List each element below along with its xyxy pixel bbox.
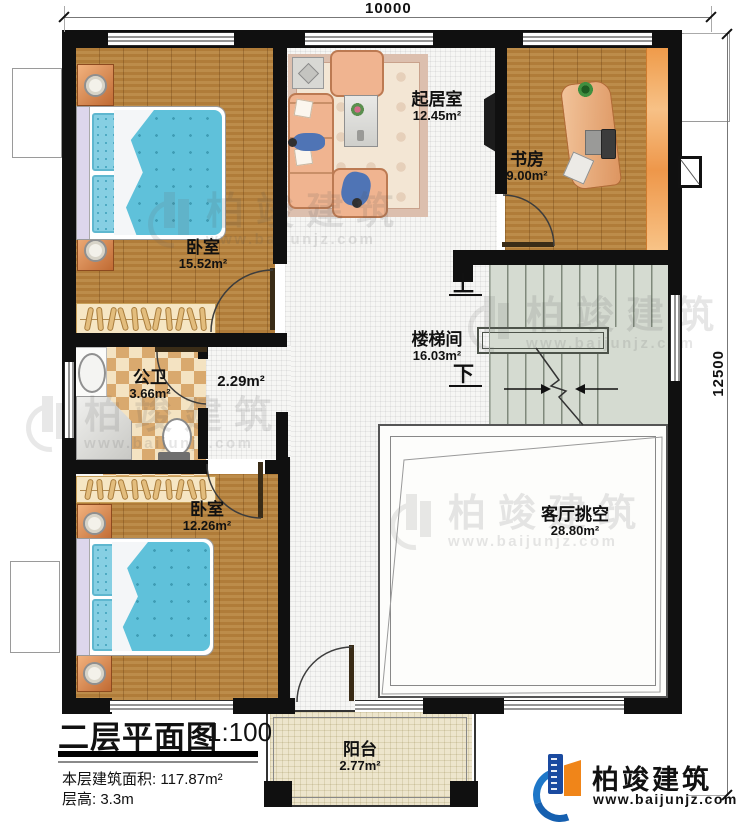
living-label: 起居室 12.45m²: [412, 90, 463, 124]
window-top-living: [305, 32, 433, 46]
stair-down-line: [449, 385, 482, 387]
stair-up-line: [449, 294, 482, 296]
wardrobe-bedroom1: [76, 303, 216, 335]
double-bed-bedroom2: [76, 538, 214, 656]
window-right-stairwell: [670, 295, 680, 381]
void-railing-inner: [390, 436, 656, 686]
lamp-icon: [83, 512, 106, 535]
watermark: 柏竣建筑 www.baijunjz.com: [468, 296, 726, 352]
bed-headboard: [77, 107, 90, 239]
roof-outline-top-right: [680, 33, 730, 122]
bay-window-study: [678, 156, 702, 188]
watermark-site: www.baijunjz.com: [206, 231, 406, 248]
hanger-icon: [199, 479, 207, 500]
table-lamp-icon: [297, 62, 318, 83]
corridor-label: 2.29m²: [217, 374, 265, 391]
hanger-icon: [130, 307, 138, 331]
wall-study-west: [495, 46, 507, 194]
hanger-icon: [96, 479, 104, 500]
dimension-line-right: [727, 34, 728, 796]
brand-website: www.baijunjz.com: [593, 791, 738, 807]
flower-vase-icon: [350, 102, 365, 117]
watermark-logo-icon: [390, 494, 440, 550]
stair-treads-lower: [489, 354, 605, 426]
study-label: 书房 9.00m²: [506, 150, 547, 184]
balcony-label: 阳台 2.77m²: [339, 740, 380, 774]
floor-plan-canvas: 柏竣建筑 www.baijunjz.com 柏竣建筑 www.baijunjz.…: [0, 0, 750, 826]
door-leaf-bedroom1: [270, 268, 275, 330]
door-leaf-balcony: [349, 645, 354, 701]
window-left-bathroom: [64, 362, 74, 438]
roof-outline-bottom-left: [10, 561, 60, 653]
nightstand: [77, 654, 112, 692]
wall-bedroom1-east: [273, 46, 287, 264]
wall-bedroom2-east: [278, 457, 290, 700]
door-leaf-bedroom2: [258, 462, 263, 518]
watermark-name: 柏竣建筑: [84, 397, 284, 435]
hanger-icon: [199, 307, 207, 331]
window-top-study: [523, 32, 652, 46]
study-rug: [646, 48, 670, 252]
plan-scale: 1:100: [207, 717, 272, 748]
window-bottom-bedroom2: [110, 700, 233, 712]
wardrobe-bedroom2: [76, 476, 216, 503]
sofa-cushion: [294, 99, 314, 119]
void-label: 客厅挑空 28.80m²: [541, 505, 609, 539]
balcony-post-left: [264, 781, 292, 807]
watermark-logo-icon: [468, 296, 518, 352]
floor-height-row: 层高: 3.3m: [62, 788, 134, 809]
remote-icon: [357, 130, 364, 141]
door-leaf-bathroom: [155, 347, 207, 352]
floor-height-value: 3.3m: [100, 791, 133, 808]
bedroom2-label: 卧室 12.26m²: [183, 500, 231, 534]
floor-area-label: 本层建筑面积:: [62, 771, 156, 788]
logo-tower-blue: [548, 754, 563, 794]
bathroom-label: 公卫 3.66m²: [129, 368, 170, 402]
wall-study-bottom: [453, 250, 682, 265]
hanger-icon: [131, 479, 139, 500]
dimension-right-value: 12500: [710, 350, 727, 397]
bed-headboard: [77, 539, 90, 655]
wall-bottom-seg2: [233, 698, 295, 714]
wall-corridor-stub: [276, 412, 288, 462]
person-on-sofa: [293, 133, 325, 151]
watermark-site: www.baijunjz.com: [526, 335, 726, 352]
hanger-icon: [165, 479, 173, 500]
wall-bedroom1-bathroom: [62, 333, 287, 347]
stair-down-label: 下: [453, 358, 474, 388]
floor-area-row: 本层建筑面积: 117.87m²: [62, 768, 223, 789]
sink-icon: [78, 353, 106, 393]
watermark-name: 柏竣建筑: [206, 193, 406, 231]
wall-bathroom-east-lower: [198, 408, 208, 459]
floor-area-value: 117.87m²: [160, 771, 222, 788]
hanger-icon: [165, 307, 173, 331]
wall-bottom-seg3: [423, 698, 504, 714]
plant-icon: [576, 80, 595, 99]
dimension-top-value: 10000: [365, 0, 412, 17]
dim-ext-right-top: [684, 33, 728, 34]
brand-logo-icon: [533, 752, 587, 810]
lamp-icon: [84, 239, 107, 262]
armchair: [330, 50, 384, 97]
roof-outline-top-left: [12, 68, 62, 158]
nightstand: [77, 504, 112, 542]
door-leaf-study: [502, 242, 554, 247]
lamp-icon: [84, 74, 107, 97]
title-divider-thin: [58, 761, 258, 763]
window-top-bedroom1: [108, 32, 234, 46]
nightstand: [77, 64, 114, 106]
lamp-icon: [83, 662, 106, 685]
watermark-site: www.baijunjz.com: [84, 435, 284, 452]
floor-height-label: 层高:: [62, 791, 96, 808]
bedroom1-label: 卧室 15.52m²: [179, 238, 227, 272]
dimension-line-top: [64, 17, 712, 18]
window-bottom-hall: [355, 700, 423, 712]
balcony-post-right: [450, 781, 478, 807]
dim-ext-top-right: [711, 6, 712, 32]
dim-ext-top-left: [64, 6, 65, 32]
logo-tower-orange: [564, 760, 581, 796]
hanger-icon: [96, 307, 104, 331]
watermark-name: 柏竣建筑: [526, 297, 726, 335]
window-bottom-void: [504, 700, 624, 712]
person-head: [288, 138, 297, 147]
title-divider-thick: [58, 751, 258, 757]
watermark: 柏竣建筑 www.baijunjz.com: [390, 494, 648, 550]
side-table: [292, 57, 324, 89]
wall-bedroom2-top-west: [62, 460, 208, 474]
monitor-icon: [601, 129, 616, 159]
wall-bottom-seg4: [624, 698, 682, 714]
